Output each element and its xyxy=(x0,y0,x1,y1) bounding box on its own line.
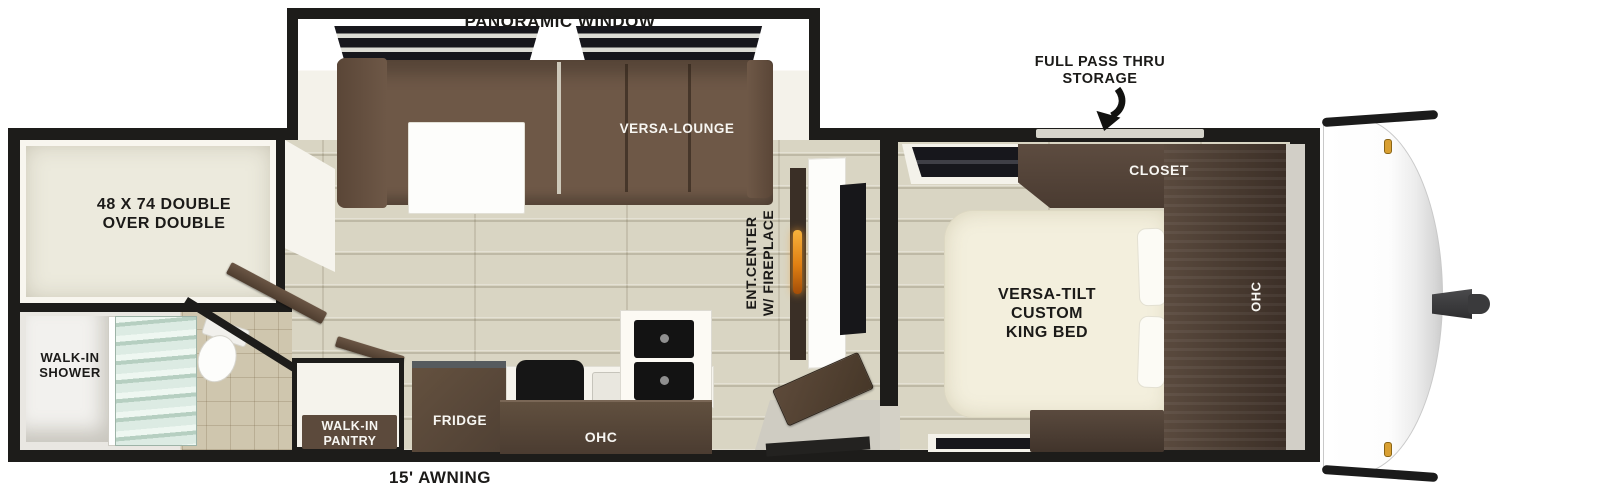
kitchen-overhead-cabinet xyxy=(500,400,712,454)
bedroom-front-wall-face xyxy=(1286,144,1305,450)
versa-lounge-label: VERSA-LOUNGE xyxy=(608,121,746,137)
walk-in-pantry-label: WALK-IN PANTRY xyxy=(303,419,397,449)
bunk-bed-label: 48 X 74 DOUBLE OVER DOUBLE xyxy=(58,196,270,234)
pillow xyxy=(1137,316,1167,389)
hitch-ball-socket xyxy=(1468,294,1490,314)
fridge-label: FRIDGE xyxy=(415,413,505,429)
bunk-room-wall xyxy=(276,140,285,303)
drawer-knob xyxy=(660,334,669,343)
pillow xyxy=(1137,228,1168,307)
bedroom-door-opening xyxy=(878,406,900,450)
bedroom-ohc-label: OHC xyxy=(1248,257,1263,337)
fridge xyxy=(412,368,506,452)
floorplan-canvas: PANORAMIC WINDOW FULL PASS THRU STORAGE … xyxy=(0,0,1600,495)
bathroom-wall xyxy=(20,303,292,312)
closet-label: CLOSET xyxy=(1113,162,1205,179)
panoramic-window-label: PANORAMIC WINDOW xyxy=(420,12,700,32)
fireplace-flame xyxy=(793,230,802,294)
walk-in-shower-label: WALK-IN SHOWER xyxy=(26,350,114,381)
marker-light xyxy=(1384,442,1392,457)
ent-center-fireplace-label: ENT.CENTER W/ FIREPLACE xyxy=(743,180,783,346)
front-cap-trim-bottom xyxy=(1322,465,1438,482)
full-pass-thru-storage-label: FULL PASS THRU STORAGE xyxy=(1010,54,1190,88)
arrow-down-icon xyxy=(1085,86,1129,132)
sofa-section-gap xyxy=(557,62,561,194)
bedroom-overhead-cabinet xyxy=(1164,144,1286,450)
sofa-arm-left xyxy=(337,58,387,208)
front-cap xyxy=(1323,118,1443,474)
table xyxy=(408,122,525,214)
king-bed-label: VERSA-TILT CUSTOM KING BED xyxy=(963,286,1131,343)
bedroom-dresser xyxy=(1030,410,1164,452)
drawer-knob xyxy=(660,376,669,385)
shower-glass xyxy=(115,316,197,446)
tv xyxy=(840,183,866,335)
kitchen-ohc-label: OHC xyxy=(561,429,641,446)
marker-light xyxy=(1384,139,1392,154)
sofa-arm-right xyxy=(747,60,773,198)
awning-label: 15' AWNING xyxy=(330,468,550,488)
